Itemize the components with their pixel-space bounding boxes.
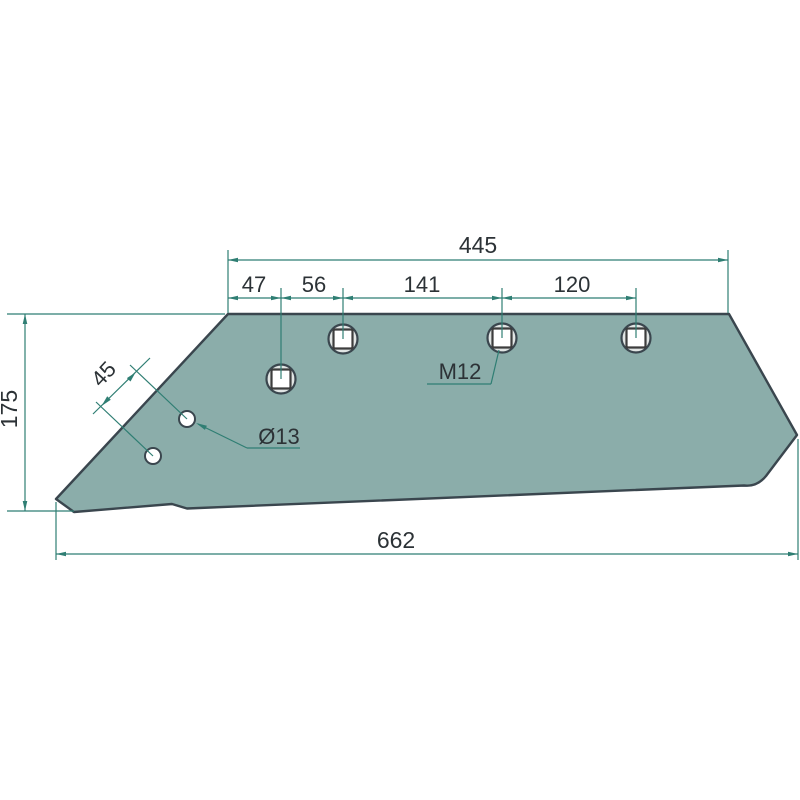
arrowhead	[333, 296, 343, 301]
dim-top-total-value: 445	[459, 232, 497, 258]
arrowhead	[343, 296, 353, 301]
dim-seg-3-value: 141	[404, 272, 441, 297]
arrowhead	[492, 296, 502, 301]
arrowhead	[23, 314, 28, 324]
drawing-canvas: 445 47 56 141 120 175 45	[0, 0, 800, 800]
arrowhead	[56, 552, 66, 557]
dim-bottom-total-value: 662	[377, 527, 415, 553]
arrowhead	[228, 296, 238, 301]
dim-height-value: 175	[0, 390, 22, 428]
dim-hole-spacing-value: 45	[86, 356, 121, 391]
technical-drawing: 445 47 56 141 120 175 45	[0, 0, 800, 800]
arrowhead	[23, 501, 28, 511]
arrowhead	[502, 296, 512, 301]
label-hole-diameter-value: Ø13	[258, 424, 300, 449]
dim-seg-4-value: 120	[554, 272, 591, 297]
label-thread-value: M12	[439, 359, 482, 384]
dim-seg-1-value: 47	[242, 272, 266, 297]
plate-outline	[56, 314, 797, 512]
arrowhead	[281, 296, 291, 301]
arrowhead	[271, 296, 281, 301]
arrowhead	[626, 296, 636, 301]
dim-seg-2-value: 56	[302, 272, 326, 297]
arrowhead	[788, 552, 798, 557]
arrowhead	[718, 258, 728, 263]
arrowhead	[228, 258, 238, 263]
